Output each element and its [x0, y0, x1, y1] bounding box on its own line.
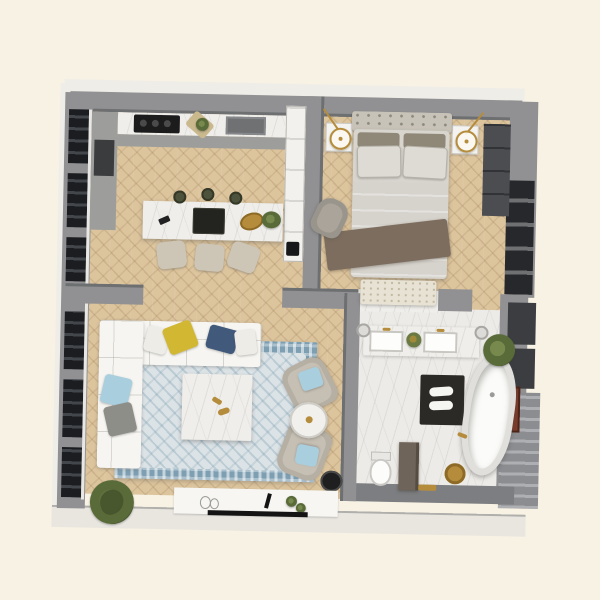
foot-bench [360, 279, 437, 306]
toilet-bowl [369, 458, 392, 485]
coffee-machine [286, 242, 299, 256]
window-left-3 [66, 237, 87, 281]
table-decor-2 [217, 407, 230, 417]
side-table-decor [306, 416, 313, 423]
wall-mid-left-stub [65, 283, 143, 305]
burner-1 [140, 120, 147, 127]
pillow-left [357, 145, 401, 178]
island-tray [193, 208, 226, 235]
gold-tray [418, 485, 436, 491]
window-left-1 [68, 109, 89, 163]
window-left-5 [62, 379, 83, 437]
sofa-pillow-white-2 [234, 329, 258, 356]
pillow-right [402, 145, 448, 179]
privacy-partition [398, 442, 419, 490]
bath-mat [420, 375, 465, 426]
towel-2 [429, 401, 453, 411]
closet-block-right-1 [507, 302, 536, 345]
floor-plan-render: { "scene": { "title": "3D rendered apart… [0, 0, 600, 600]
console-black-object [264, 493, 272, 509]
burner-2 [152, 120, 159, 127]
bar-stool-2 [194, 243, 225, 273]
kitchen-sink [226, 116, 266, 135]
cooktop [134, 114, 180, 133]
burner-3 [164, 120, 171, 127]
towel-1 [429, 386, 454, 397]
console-decor-ring-2 [210, 498, 219, 509]
faucet-right [437, 329, 445, 332]
sofa-pillow-gray [103, 401, 138, 437]
coffee-table [181, 374, 252, 441]
window-left-4 [64, 311, 85, 369]
faucet-left [383, 328, 391, 331]
toilet [368, 451, 393, 485]
table-decor-1 [211, 396, 222, 405]
bar-stool-1 [156, 240, 188, 270]
kitchen-left-appliance [94, 140, 115, 176]
window-left-2 [67, 173, 88, 227]
wall-mid-right-stub [438, 289, 472, 312]
tall-cabinet-column [283, 106, 306, 262]
vanity-sink-right [423, 332, 457, 354]
apartment-plan [51, 79, 548, 537]
bedroom-wardrobe [482, 124, 511, 217]
window-left-6 [61, 447, 82, 497]
lounge-pillow-2 [294, 443, 319, 467]
vanity-sink-left [369, 330, 403, 352]
